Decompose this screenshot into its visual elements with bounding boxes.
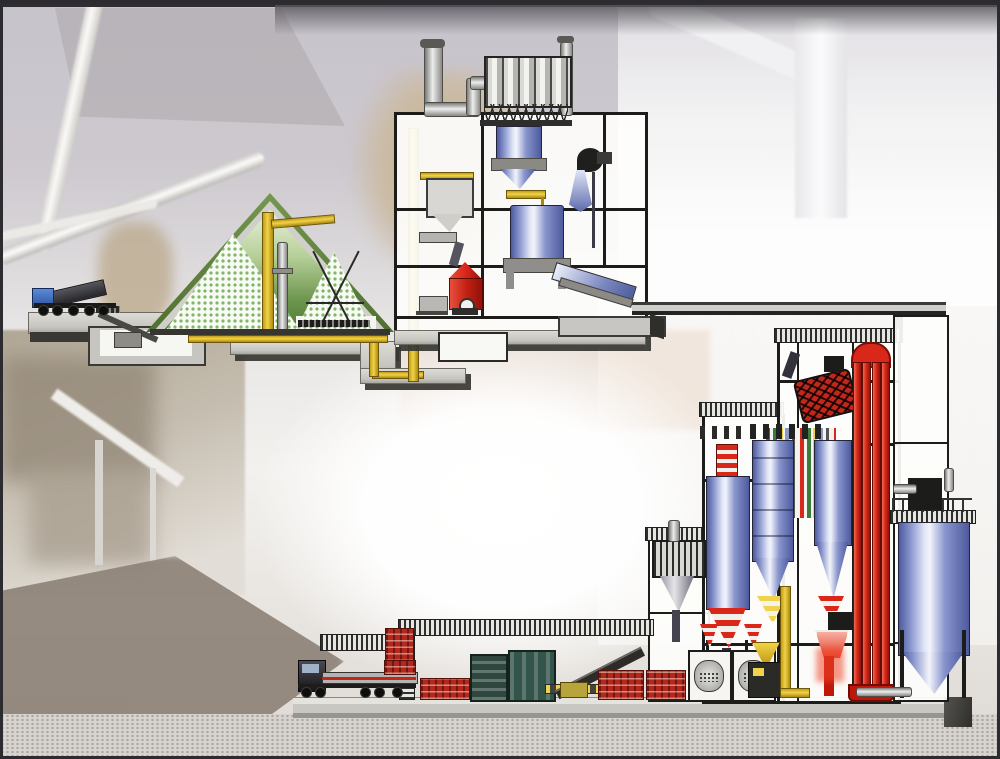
photo-gravel [0, 714, 1000, 759]
truck-wheel [52, 305, 63, 316]
mixer-motor-box [828, 612, 852, 630]
mini-conveyor-drip [541, 197, 544, 205]
product-silo [898, 522, 970, 656]
yellow-riser-elbow [780, 688, 810, 698]
gallery-conveyor-elbow [369, 341, 379, 377]
tower-column [603, 115, 606, 265]
pallet-stack-tall [385, 628, 414, 662]
fan-motor [597, 152, 612, 164]
annex-spout [672, 610, 680, 642]
yellow-riser-pipe [780, 586, 791, 698]
mini-conveyor [506, 190, 546, 199]
pit-loader [114, 332, 142, 348]
elevator-leg [853, 362, 862, 688]
dome-pipe-flange [272, 268, 293, 274]
silo2 [752, 440, 794, 562]
bag-filter-hoppers [484, 104, 568, 121]
palletizer-2 [508, 650, 556, 702]
pallet-on-truck [384, 660, 416, 675]
flatbed-wheel [392, 687, 403, 698]
canopy-roof-high [398, 619, 654, 636]
flatbed-stripe [322, 677, 416, 680]
fan-drop-pipe [592, 172, 595, 248]
flatbed-cab-window [302, 664, 319, 673]
flatbed-wheel [360, 687, 371, 698]
silo1-head-pipe [716, 444, 738, 479]
elevator-leg [881, 362, 890, 688]
tall-parapet [774, 328, 900, 343]
vibro-feeder [419, 232, 457, 243]
bag-group-right-2 [646, 670, 686, 700]
stack-2-cap [557, 36, 574, 43]
photo-slope-shade-1 [0, 356, 155, 481]
truck-wheel [84, 305, 95, 316]
feed-bin [426, 178, 474, 218]
red-glow [816, 648, 844, 682]
silo-vent-pipe [944, 468, 954, 492]
plant-cutaway-illustration [0, 0, 1000, 759]
flatbed-wheel [315, 687, 326, 698]
silo-feed-pipe [893, 484, 917, 494]
ground-gallery-end [650, 314, 664, 340]
bag-group-right-1 [598, 670, 644, 700]
silo3 [814, 440, 852, 546]
dome-center-pipe [277, 242, 288, 334]
silo-top-filter [908, 478, 942, 510]
elevator-leg [862, 362, 871, 688]
photo-yard-post [95, 440, 103, 565]
truck-wheel [98, 305, 109, 316]
bay-floor-line [895, 442, 947, 444]
truck-wheel [68, 305, 79, 316]
photo-slope-shade-2 [28, 470, 153, 565]
photo-big-stack [795, 18, 847, 218]
mixer-detail [753, 668, 764, 676]
small-yellow-machine [560, 682, 588, 698]
photo-yard-post-2 [150, 468, 156, 563]
conveyor-bridge [632, 302, 946, 315]
silo1 [706, 476, 750, 610]
roller-mill-base [452, 308, 478, 315]
elevator-leg [872, 362, 881, 688]
annex-filter-pipe [668, 520, 680, 542]
packer1-grid [699, 672, 718, 682]
scraper-chain-row [298, 320, 370, 327]
photo-top-dark-band [275, 5, 1000, 35]
dryer-drum [510, 205, 564, 263]
flatbed-wheel [301, 687, 312, 698]
machines-row-2 [700, 426, 744, 439]
tower-basement-pit [438, 332, 508, 362]
sifter-motor [824, 356, 844, 372]
dome-reclaim-conveyor [188, 335, 388, 343]
flatbed-wheel [374, 687, 385, 698]
tower-pump-base [416, 311, 448, 315]
palletizer-1 [470, 654, 508, 702]
mid-parapet [699, 402, 784, 417]
portal-scraper-beam [306, 302, 364, 304]
bag-group-left [420, 678, 470, 700]
machines-row [750, 424, 822, 439]
truck-wheel [38, 305, 49, 316]
bag-filter-cells [484, 56, 572, 108]
annex-dust-filter [652, 540, 706, 578]
dryer-leg [506, 271, 514, 289]
silo-leg [962, 630, 966, 698]
exhaust-stack-cap [420, 39, 445, 48]
silo-discharge-conveyor [856, 687, 912, 697]
